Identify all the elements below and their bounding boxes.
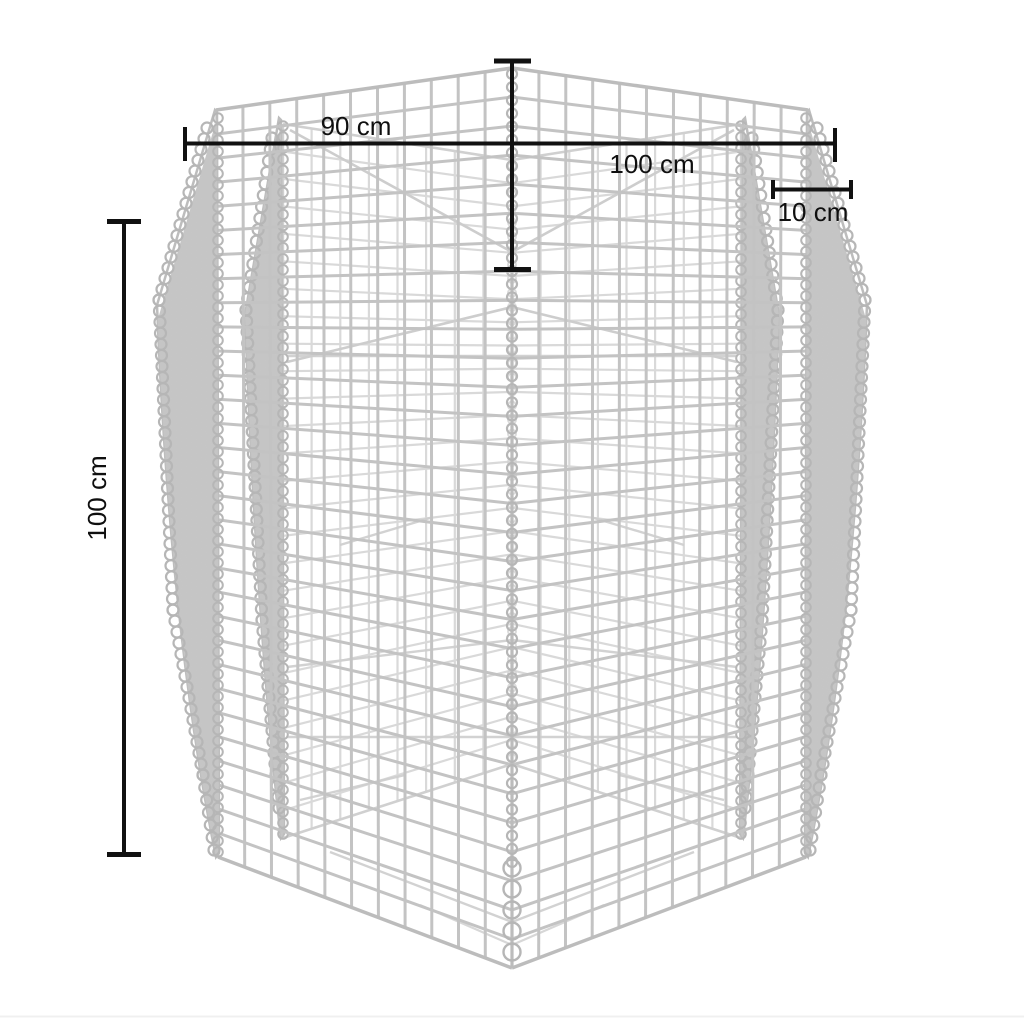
gabion-dimension-diagram: 90 cm 100 cm 10 cm 100 cm [0,0,1024,1024]
label-total-width: 100 cm [609,149,694,179]
label-height: 100 cm [82,455,112,540]
product-diagram: 90 cm 100 cm 10 cm 100 cm [0,0,1024,1024]
label-top-width: 90 cm [321,111,392,141]
label-side-panel: 10 cm [778,197,849,227]
